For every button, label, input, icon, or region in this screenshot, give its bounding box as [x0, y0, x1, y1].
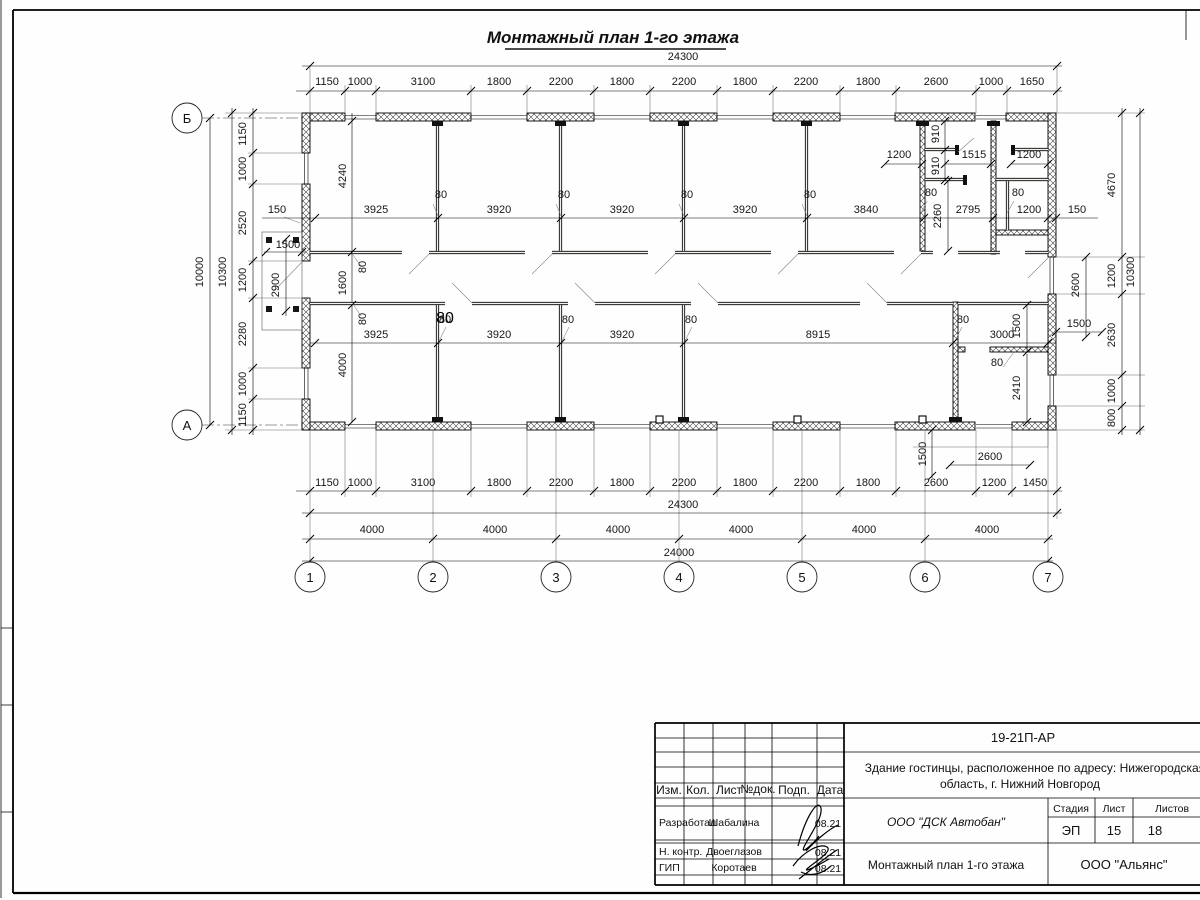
dim-label: 10000 — [194, 257, 206, 288]
stage-value: ЭП — [1062, 823, 1081, 838]
dim-label: 3920 — [487, 204, 511, 216]
dim-label: 2200 — [549, 477, 573, 489]
right-dimensions: 4670 1200 2630 1000 800 10300 2600 1500 … — [1067, 173, 1137, 427]
dim-label: 3925 — [364, 329, 388, 341]
dim-label: 1200 — [887, 149, 911, 161]
dim-label: 2200 — [794, 76, 818, 88]
dim-label: 80 — [804, 189, 816, 201]
dim-label: 24300 — [668, 499, 699, 511]
dim-label: 1000 — [1106, 379, 1118, 403]
dim-label: 80 — [357, 313, 369, 325]
dim-label: 1000 — [979, 76, 1003, 88]
dim-label: 2600 — [924, 477, 948, 489]
dim-label: 1500 — [1011, 314, 1023, 338]
axis-label: А — [183, 418, 192, 433]
dim-label: 4000 — [729, 524, 753, 536]
row-role: Н. контр. — [659, 846, 702, 858]
dim-label: 1150 — [237, 403, 249, 427]
dim-label: 3920 — [610, 329, 634, 341]
axis-label: 6 — [921, 570, 928, 585]
dim-label: 1500 — [1067, 318, 1091, 330]
dim-label: 24300 — [668, 51, 699, 63]
dim-label: 4000 — [337, 353, 349, 377]
dim-label: 150 — [1068, 204, 1086, 216]
dim-label: 4000 — [975, 524, 999, 536]
axis-label: 7 — [1044, 570, 1051, 585]
row-role: ГИП — [659, 862, 680, 874]
row-role: Разработал — [659, 817, 716, 829]
exterior-walls — [302, 113, 1056, 430]
object-description-line1: Здание гостинцы, расположенное по адресу… — [865, 761, 1200, 775]
dim-label: 3100 — [411, 477, 435, 489]
dim-label: 80 — [435, 189, 447, 201]
dim-label: 80 — [685, 314, 697, 326]
dim-label: 80 — [681, 189, 693, 201]
row-name: Коротаев — [711, 862, 757, 874]
dim-label: 2410 — [1011, 376, 1023, 400]
col-kol: Кол. — [686, 783, 710, 797]
dim-label: 1200 — [237, 268, 249, 292]
dim-label: 4000 — [483, 524, 507, 536]
axis-label: 2 — [429, 570, 436, 585]
dim-label: 2200 — [672, 76, 696, 88]
dim-label: 2280 — [237, 322, 249, 346]
dim-label: 910 — [930, 157, 942, 175]
right-porch — [913, 430, 1048, 447]
sheet-label: Лист — [1103, 803, 1126, 815]
col-ndok: №док. — [740, 782, 775, 796]
dim-label: 4670 — [1106, 173, 1118, 197]
dim-label: 1800 — [610, 477, 634, 489]
doc-code: 19-21П-АР — [991, 730, 1055, 745]
dim-label: 800 — [1106, 409, 1118, 427]
dim-label: 1600 — [337, 271, 349, 295]
contractor-name: ООО "ДСК Автобан" — [887, 815, 1006, 829]
dim-label: 1800 — [610, 76, 634, 88]
dim-label: 80 — [991, 357, 1003, 369]
dim-label: 2795 — [956, 204, 980, 216]
floor-plan-drawing: Монтажный план 1-го этажа — [0, 0, 1200, 900]
page-title: Монтажный план 1-го этажа — [487, 28, 739, 47]
dim-label: 150 — [268, 204, 286, 216]
dim-label: 1515 — [962, 149, 986, 161]
dim-label: 80 — [562, 314, 574, 326]
dim-label: 1000 — [237, 372, 249, 396]
row-name: Двоеглазов — [706, 846, 762, 858]
dim-label: 4000 — [852, 524, 876, 536]
left-dimensions: 1150 1000 2520 1200 2280 1000 1150 10000… — [194, 122, 249, 427]
bottom-dimensions: 1150 1000 3100 1800 2200 1800 2200 1800 … — [315, 477, 1047, 559]
dim-label: 1150 — [237, 122, 249, 146]
sheets-label: Листов — [1155, 803, 1190, 815]
dim-label: 2630 — [1106, 323, 1118, 347]
sheets-value: 18 — [1148, 823, 1162, 838]
stage-label: Стадия — [1053, 803, 1089, 815]
dimension-ticks — [206, 62, 1144, 565]
dim-label: 2600 — [1070, 273, 1082, 297]
axis-label: 3 — [552, 570, 559, 585]
org-name: ООО "Альянс" — [1081, 857, 1168, 872]
sheet-value: 15 — [1107, 823, 1121, 838]
title-block: 19-21П-АР Здание гостинцы, расположенное… — [655, 723, 1200, 885]
dim-label: 80 — [357, 261, 369, 273]
dim-label: 1800 — [487, 76, 511, 88]
dim-label: 1500 — [917, 442, 929, 466]
dim-label: 1800 — [733, 76, 757, 88]
dim-label: 3100 — [411, 76, 435, 88]
dim-label: 1000 — [348, 76, 372, 88]
dim-label: 3840 — [854, 204, 878, 216]
axis-label: 5 — [798, 570, 805, 585]
col-list: Лист — [716, 783, 743, 797]
dim-label: 80 — [925, 187, 937, 199]
dim-label: 80 — [957, 314, 969, 326]
dim-label: 2200 — [672, 477, 696, 489]
dim-label: 2900 — [270, 273, 282, 297]
dim-label: 1200 — [1017, 204, 1041, 216]
top-dimensions: 24300 1150 1000 3100 1800 2200 1800 2200… — [315, 51, 1044, 88]
col-izm: Изм. — [656, 783, 682, 797]
dim-label: 2600 — [924, 76, 948, 88]
object-description-line2: область, г. Нижний Новгород — [940, 777, 1100, 791]
axis-label: 4 — [675, 570, 682, 585]
dim-label: 2200 — [549, 76, 573, 88]
col-data: Дата — [817, 783, 844, 797]
col-podp: Подп. — [778, 783, 810, 797]
dim-label: 2600 — [978, 451, 1002, 463]
drawing-title: Монтажный план 1-го этажа — [487, 28, 739, 49]
dim-label: 24000 — [664, 547, 695, 559]
dim-label: 1000 — [348, 477, 372, 489]
dim-label: 1200 — [1106, 264, 1118, 288]
dim-label: 80 — [1012, 187, 1024, 199]
dim-label: 1650 — [1020, 76, 1044, 88]
dim-label: 3925 — [364, 204, 388, 216]
drawing-name: Монтажный план 1-го этажа — [868, 858, 1025, 872]
dim-label: 2200 — [794, 477, 818, 489]
row-name: Шабалина — [709, 817, 760, 829]
axis-label: 1 — [306, 570, 313, 585]
dim-label: 4000 — [360, 524, 384, 536]
dim-label: 1450 — [1023, 477, 1047, 489]
dim-label: 3920 — [610, 204, 634, 216]
dim-label: 1000 — [237, 157, 249, 181]
dim-label: 1200 — [982, 477, 1006, 489]
dim-label: 1500 — [276, 239, 300, 251]
dim-label: 4000 — [606, 524, 630, 536]
dim-label: 1800 — [856, 477, 880, 489]
dim-label: 4240 — [337, 164, 349, 188]
dim-label: 10300 — [1125, 257, 1137, 288]
dim-label: 80 — [558, 189, 570, 201]
dim-label: 1150 — [315, 477, 339, 489]
dim-label: 1800 — [856, 76, 880, 88]
dim-label: 1800 — [733, 477, 757, 489]
dim-label: 1200 — [1017, 149, 1041, 161]
dim-label: 3920 — [733, 204, 757, 216]
dim-label: 10300 — [217, 257, 229, 288]
axis-label: Б — [183, 111, 192, 126]
dim-label: 3920 — [487, 329, 511, 341]
dim-label: 1800 — [487, 477, 511, 489]
dim-label: 2520 — [237, 211, 249, 235]
dim-label: 910 — [930, 125, 942, 143]
dim-label: 1150 — [315, 76, 339, 88]
dim-label: 8915 — [806, 329, 830, 341]
dim-label: 2260 — [932, 204, 944, 228]
drawing-sheet: Монтажный план 1-го этажа — [0, 0, 1200, 900]
dim-label: 80 — [439, 314, 451, 326]
